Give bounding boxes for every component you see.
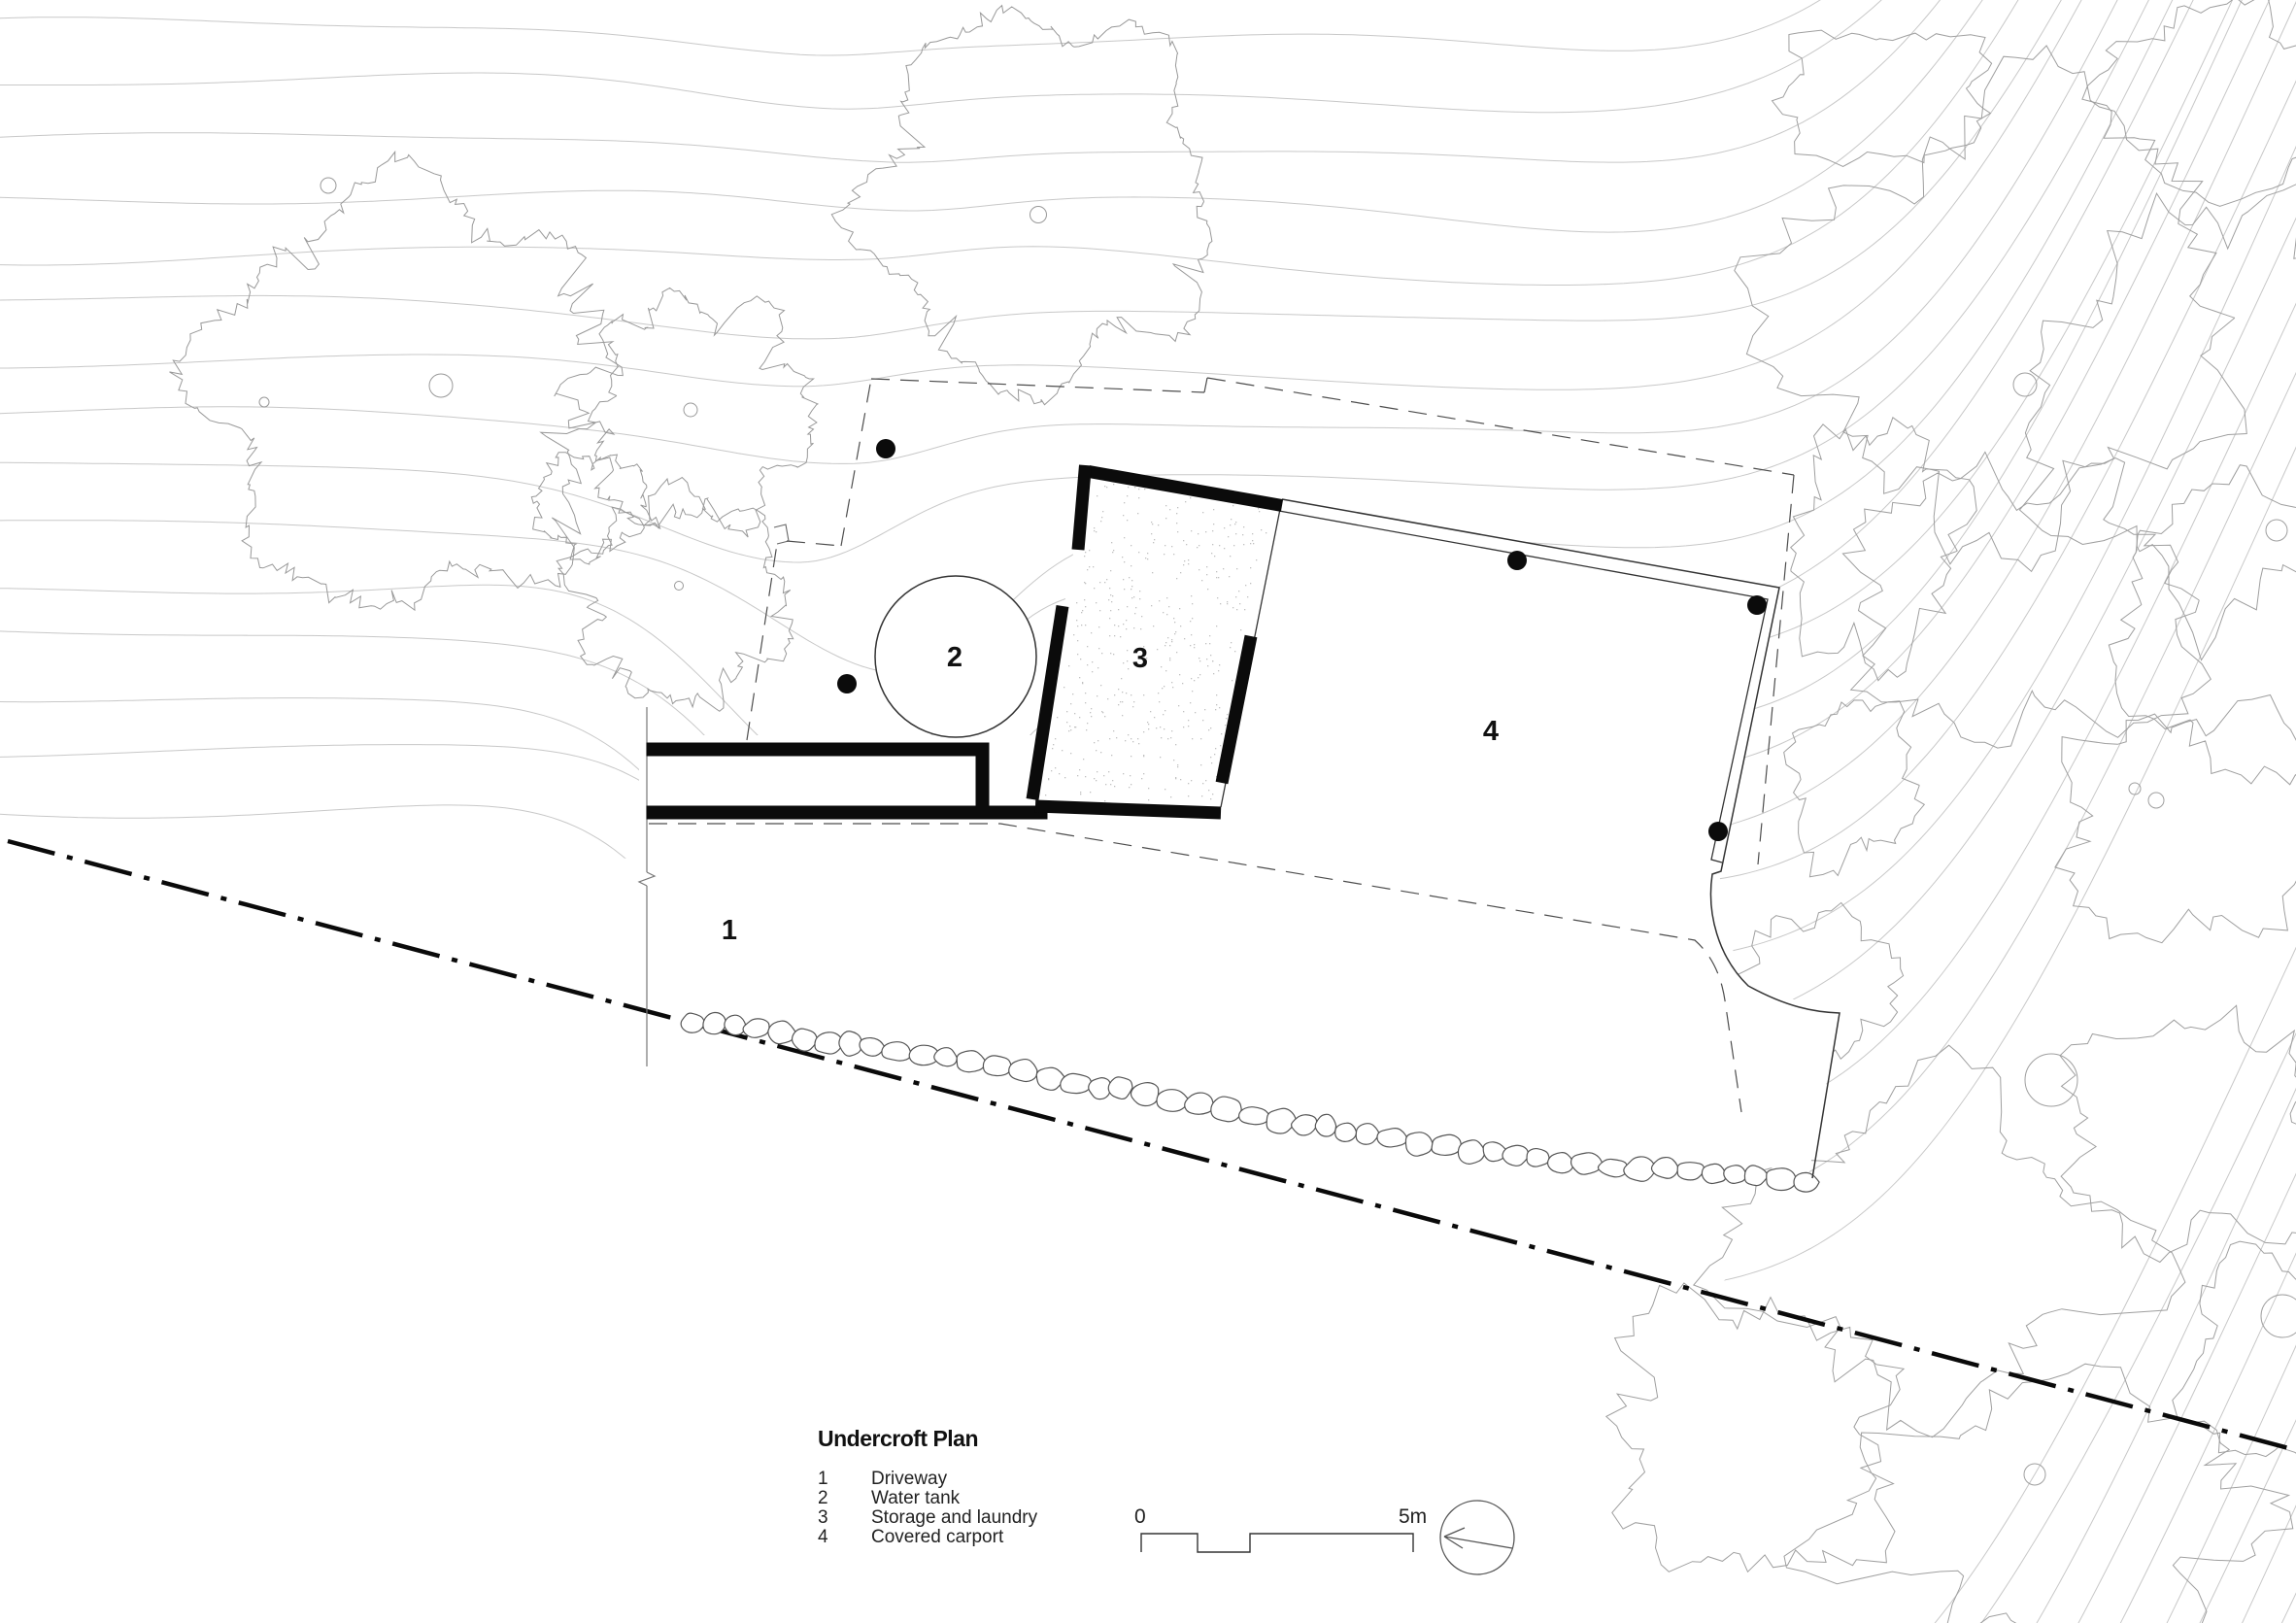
svg-text:4: 4 [1483,716,1499,747]
svg-text:Storage and laundry: Storage and laundry [871,1507,1038,1528]
svg-text:2: 2 [947,642,962,673]
svg-text:Water tank: Water tank [871,1488,961,1508]
svg-text:2: 2 [818,1488,828,1508]
svg-text:Covered carport: Covered carport [871,1527,1004,1547]
svg-text:Driveway: Driveway [871,1469,948,1489]
svg-text:4: 4 [818,1527,828,1547]
svg-text:3: 3 [818,1507,828,1528]
svg-text:0: 0 [1134,1505,1146,1528]
svg-text:1: 1 [722,915,737,946]
svg-text:5m: 5m [1399,1505,1427,1528]
svg-text:1: 1 [818,1469,828,1489]
svg-text:Undercroft Plan: Undercroft Plan [818,1426,978,1451]
svg-text:3: 3 [1132,643,1148,674]
